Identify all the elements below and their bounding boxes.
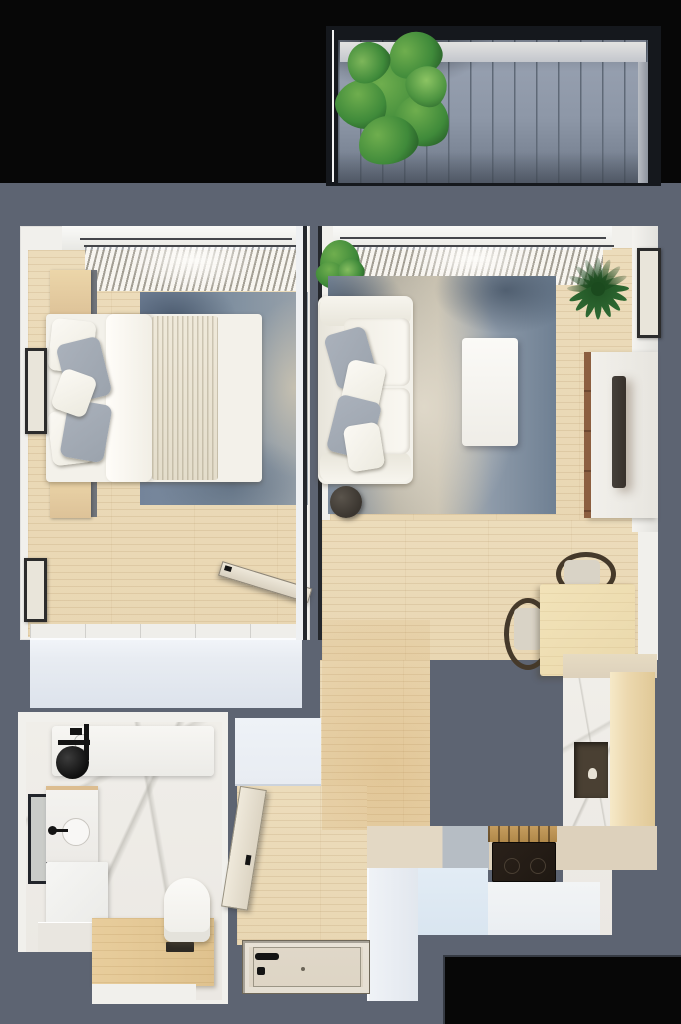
toilet-flush-plate bbox=[166, 942, 194, 952]
sink-basin bbox=[62, 818, 90, 846]
bedroom-wall-art-lower bbox=[24, 558, 47, 622]
bedroom-curtains bbox=[85, 247, 301, 291]
shower-head bbox=[56, 746, 89, 779]
bathroom-corner-cut bbox=[0, 952, 92, 1024]
toilet bbox=[164, 878, 210, 942]
entry-door-peephole bbox=[301, 967, 305, 971]
side-table bbox=[330, 486, 362, 518]
bed-throw-blanket bbox=[152, 316, 218, 480]
outside-area-bottom-right bbox=[443, 955, 681, 1024]
washing-machine bbox=[46, 862, 108, 924]
floor-plan bbox=[0, 0, 681, 1024]
living-curtain-rod bbox=[340, 237, 606, 239]
kitchen-niche bbox=[574, 742, 608, 798]
tv bbox=[612, 376, 626, 488]
niche-object bbox=[588, 768, 597, 779]
dining-chair-top-seat bbox=[564, 560, 600, 586]
tv-stand-edge bbox=[584, 352, 591, 518]
nightstand-top bbox=[50, 270, 91, 316]
bedroom-wardrobe bbox=[30, 638, 302, 708]
entry-door-lock bbox=[257, 967, 265, 975]
kitchen-front-blue bbox=[418, 868, 488, 935]
sofa-pillow-white-2 bbox=[343, 421, 386, 472]
divider-wall-face bbox=[296, 226, 303, 640]
burner-1 bbox=[504, 858, 520, 874]
hood-vent bbox=[488, 826, 557, 842]
sink-faucet-lever bbox=[56, 829, 68, 832]
divider-wall-trim-left bbox=[303, 226, 307, 640]
bathroom-door-handle bbox=[245, 855, 252, 866]
vanity-sink bbox=[46, 786, 98, 862]
bedroom-wall-art-upper bbox=[25, 348, 47, 434]
bedroom-curtain-rod bbox=[80, 238, 292, 240]
platform-front-strip bbox=[92, 984, 196, 1002]
kitchen-corner-column bbox=[367, 868, 418, 1001]
entry-door bbox=[242, 940, 370, 994]
balcony-plant bbox=[336, 32, 452, 168]
balcony-side-wall bbox=[638, 62, 648, 183]
bedroom-tile-strip bbox=[30, 624, 302, 638]
burner-2 bbox=[530, 858, 546, 874]
kitchen-front-white bbox=[488, 882, 600, 935]
hall-cabinet bbox=[235, 718, 321, 786]
balcony-railing-edge bbox=[332, 30, 334, 182]
door-handle bbox=[224, 565, 232, 572]
palm-plant bbox=[565, 256, 631, 320]
shower-pipe-horizontal bbox=[58, 740, 90, 745]
dining-chair-left-seat bbox=[514, 608, 542, 650]
cooktop bbox=[492, 842, 556, 882]
living-wall-art bbox=[637, 248, 661, 338]
palm-center bbox=[591, 282, 605, 296]
coffee-table bbox=[462, 338, 518, 446]
duvet-fold bbox=[106, 314, 152, 482]
entry-door-handle bbox=[255, 953, 279, 960]
hall-floor-tint bbox=[322, 620, 430, 830]
shower-knob bbox=[70, 728, 82, 735]
